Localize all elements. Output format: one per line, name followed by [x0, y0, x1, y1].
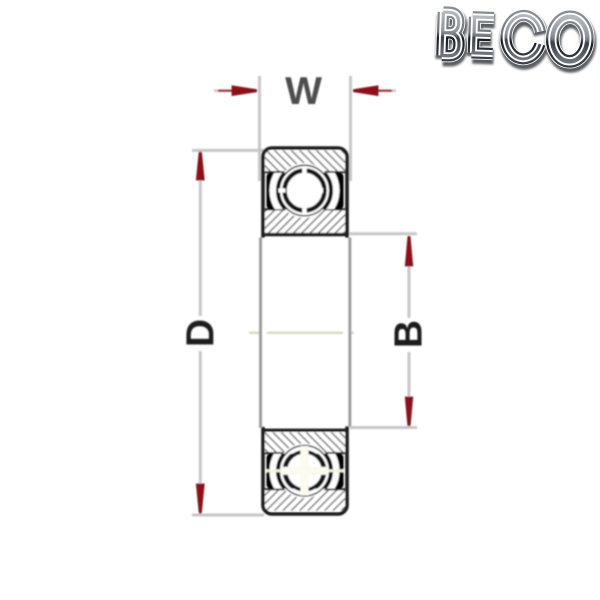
- svg-text:D: D: [179, 319, 222, 347]
- svg-text:W: W: [285, 70, 322, 113]
- svg-text:B: B: [388, 320, 431, 348]
